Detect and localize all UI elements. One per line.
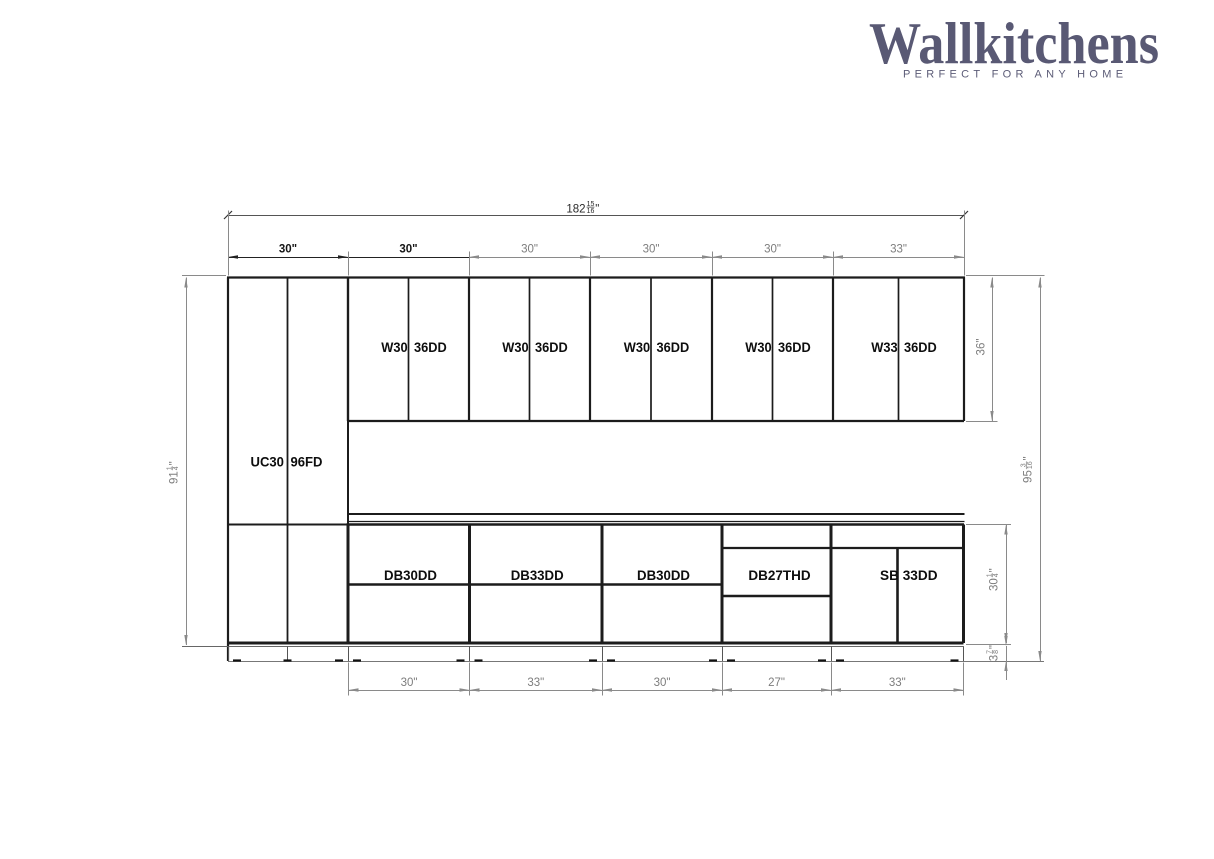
svg-text:DB30DD: DB30DD	[384, 567, 437, 583]
svg-text:": "	[1023, 456, 1035, 460]
svg-text:95: 95	[1023, 470, 1035, 483]
svg-text:DB33DD: DB33DD	[511, 567, 564, 583]
svg-text:W30 36DD: W30 36DD	[502, 339, 568, 355]
svg-text:SB 33DD: SB 33DD	[880, 567, 938, 583]
svg-text:4: 4	[993, 573, 1000, 577]
svg-text:30": 30"	[643, 243, 660, 255]
svg-text:PERFECT FOR ANY HOME: PERFECT FOR ANY HOME	[903, 69, 1127, 81]
svg-text:": "	[989, 568, 1001, 572]
svg-text:182: 182	[566, 203, 585, 215]
svg-text:W30 36DD: W30 36DD	[381, 339, 447, 355]
svg-text:DB27THD: DB27THD	[748, 567, 810, 583]
svg-text:36": 36"	[976, 339, 988, 356]
svg-text:33": 33"	[527, 677, 544, 689]
svg-text:UC30 96FD: UC30 96FD	[251, 454, 323, 470]
svg-text:27": 27"	[768, 677, 785, 689]
svg-text:": "	[989, 645, 1001, 649]
svg-text:30": 30"	[764, 243, 781, 255]
svg-text:91: 91	[169, 471, 181, 484]
svg-text:DB30DD: DB30DD	[637, 567, 690, 583]
svg-text:30: 30	[989, 578, 1001, 591]
svg-text:": "	[169, 461, 181, 465]
svg-text:W30 36DD: W30 36DD	[624, 339, 690, 355]
svg-text:30": 30"	[654, 677, 671, 689]
svg-text:W30 36DD: W30 36DD	[745, 339, 811, 355]
svg-text:4: 4	[173, 466, 180, 470]
svg-text:33": 33"	[889, 677, 906, 689]
svg-text:30": 30"	[401, 677, 418, 689]
svg-text:30": 30"	[521, 243, 538, 255]
svg-text:30": 30"	[279, 243, 297, 255]
svg-text:16: 16	[587, 208, 595, 215]
svg-text:W33 36DD: W33 36DD	[871, 339, 937, 355]
svg-text:33": 33"	[890, 243, 907, 255]
svg-text:Wallkitchens: Wallkitchens	[869, 10, 1159, 76]
svg-text:3: 3	[989, 655, 1001, 661]
svg-text:16: 16	[1027, 461, 1034, 469]
svg-text:30": 30"	[399, 243, 417, 255]
svg-text:8: 8	[993, 650, 1000, 654]
svg-text:": "	[595, 203, 599, 215]
